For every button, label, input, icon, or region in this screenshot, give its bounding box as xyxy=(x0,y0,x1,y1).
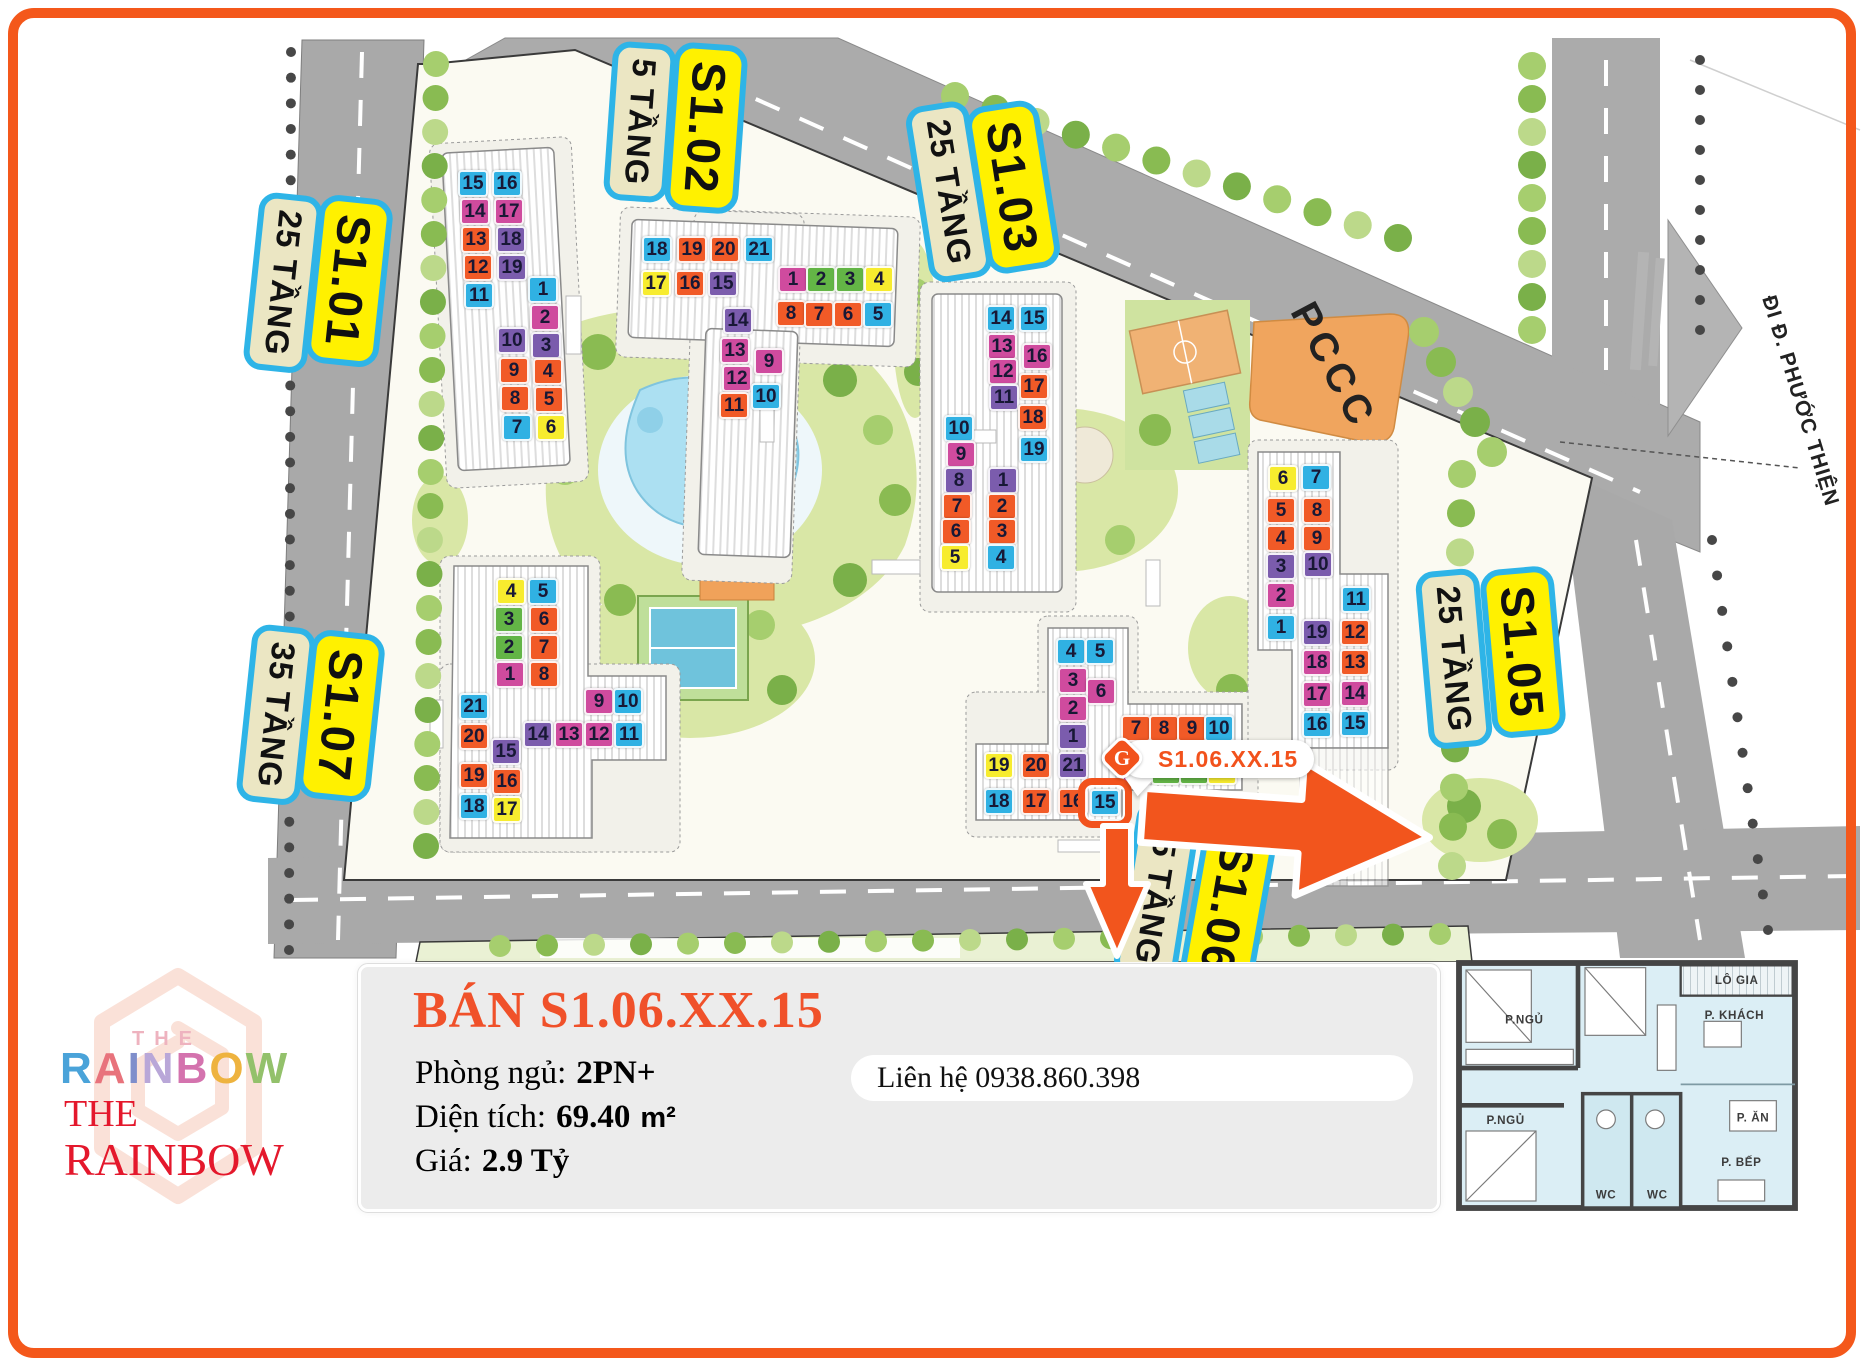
area-value: 69.40 xyxy=(556,1099,630,1135)
unit-cell-S1.06-3[interactable]: 3 xyxy=(1058,667,1088,694)
unit-cell-S1.03-9[interactable]: 9 xyxy=(946,441,976,468)
unit-cell-S1.07-11[interactable]: 11 xyxy=(614,721,644,748)
site-map: PCCC xyxy=(0,0,1864,962)
unit-cell-S1.01-16[interactable]: 16 xyxy=(492,170,522,197)
unit-cell-S1.01-15[interactable]: 15 xyxy=(458,170,488,197)
price-row: Giá:2.9 Tỷ xyxy=(415,1143,569,1180)
unit-cell-S1.02-12[interactable]: 12 xyxy=(722,365,752,392)
unit-cell-S1.02-18[interactable]: 18 xyxy=(642,236,672,263)
unit-cell-S1.07-21[interactable]: 21 xyxy=(459,693,489,720)
unit-cell-S1.03-11[interactable]: 11 xyxy=(989,384,1019,411)
unit-cell-S1.02-13[interactable]: 13 xyxy=(720,337,750,364)
logo-letter: O xyxy=(209,1044,245,1093)
logo-letter: B xyxy=(176,1044,210,1093)
unit-cell-S1.07-9[interactable]: 9 xyxy=(584,688,614,715)
unit-cell-S1.03-3[interactable]: 3 xyxy=(987,518,1017,545)
unit-cell-S1.05-3[interactable]: 3 xyxy=(1266,553,1296,580)
unit-cell-S1.05-6[interactable]: 6 xyxy=(1268,465,1298,492)
unit-cell-S1.02-5[interactable]: 5 xyxy=(863,301,893,328)
unit-cell-S1.01-10[interactable]: 10 xyxy=(497,327,527,354)
unit-cell-S1.03-13[interactable]: 13 xyxy=(987,333,1017,360)
unit-cell-S1.01-3[interactable]: 3 xyxy=(531,332,561,359)
unit-cell-S1.01-8[interactable]: 8 xyxy=(500,385,530,412)
unit-cell-S1.03-4[interactable]: 4 xyxy=(986,544,1016,571)
unit-cell-S1.06-8[interactable]: 8 xyxy=(1149,715,1179,742)
floorplan-thumbnail: P.NGỦ LÔ GIA P. KHÁCH P.NGỦ P. ĂN P. BẾP… xyxy=(1452,956,1802,1215)
unit-cell-S1.02-4[interactable]: 4 xyxy=(864,266,894,293)
unit-cell-S1.06-17[interactable]: 17 xyxy=(1021,788,1051,815)
room-label: P. KHÁCH xyxy=(1705,1009,1765,1022)
unit-cell-S1.01-5[interactable]: 5 xyxy=(534,386,564,413)
room-label: LÔ GIA xyxy=(1715,974,1759,987)
tower-label-s105-name[interactable]: S1.05 xyxy=(1479,565,1567,740)
unit-cell-S1.07-7[interactable]: 7 xyxy=(529,634,559,661)
unit-cell-S1.01-12[interactable]: 12 xyxy=(463,254,493,281)
unit-cell-S1.07-19[interactable]: 19 xyxy=(459,762,489,789)
unit-cell-S1.01-7[interactable]: 7 xyxy=(502,414,532,441)
unit-cell-S1.01-18[interactable]: 18 xyxy=(496,226,526,253)
unit-cell-S1.06-6[interactable]: 6 xyxy=(1086,678,1116,705)
logo-rainbow: RAINBOW xyxy=(64,1135,284,1185)
room-label: WC xyxy=(1596,1189,1617,1202)
unit-cell-S1.02-10[interactable]: 10 xyxy=(751,383,781,410)
unit-cell-S1.02-16[interactable]: 16 xyxy=(675,270,705,297)
unit-cell-S1.05-13[interactable]: 13 xyxy=(1340,649,1370,676)
unit-cell-S1.02-11[interactable]: 11 xyxy=(719,392,749,419)
room-label: P.NGỦ xyxy=(1486,1114,1524,1127)
unit-cell-S1.05-4[interactable]: 4 xyxy=(1266,525,1296,552)
room-label: P.NGỦ xyxy=(1505,1014,1543,1027)
contact-field[interactable]: Liên hệ 0938.860.398 xyxy=(851,1055,1413,1101)
unit-cell-S1.05-2[interactable]: 2 xyxy=(1266,582,1296,609)
logo-letter: R xyxy=(60,1044,94,1093)
unit-cell-S1.01-4[interactable]: 4 xyxy=(533,358,563,385)
unit-cell-S1.05-8[interactable]: 8 xyxy=(1302,497,1332,524)
unit-cell-S1.05-16[interactable]: 16 xyxy=(1302,711,1332,738)
room-label: P. BẾP xyxy=(1721,1156,1761,1169)
unit-cell-S1.06-10[interactable]: 10 xyxy=(1204,715,1234,742)
unit-cell-S1.06-18[interactable]: 18 xyxy=(984,788,1014,815)
unit-cell-S1.07-18[interactable]: 18 xyxy=(459,793,489,820)
unit-cell-S1.03-1[interactable]: 1 xyxy=(988,467,1018,494)
unit-cell-S1.01-11[interactable]: 11 xyxy=(464,282,494,309)
unit-cell-S1.07-2[interactable]: 2 xyxy=(494,634,524,661)
unit-cell-S1.07-16[interactable]: 16 xyxy=(492,768,522,795)
unit-cell-S1.02-7[interactable]: 7 xyxy=(804,301,834,328)
unit-cell-S1.02-14[interactable]: 14 xyxy=(723,307,753,334)
unit-cell-S1.02-2[interactable]: 2 xyxy=(806,266,836,293)
unit-cell-S1.02-15[interactable]: 15 xyxy=(708,270,738,297)
bedrooms-label: Phòng ngủ: xyxy=(415,1055,566,1091)
unit-cell-S1.03-16[interactable]: 16 xyxy=(1022,343,1052,370)
unit-cell-S1.05-12[interactable]: 12 xyxy=(1340,619,1370,646)
bedrooms-value: 2PN+ xyxy=(576,1055,655,1091)
unit-cell-S1.01-9[interactable]: 9 xyxy=(499,357,529,384)
unit-cell-S1.05-7[interactable]: 7 xyxy=(1301,464,1331,491)
logo-the: THE xyxy=(64,1094,284,1135)
rainbow-diamond-logo-icon: G xyxy=(1098,734,1146,782)
unit-cell-S1.07-1[interactable]: 1 xyxy=(495,661,525,688)
area-row: Diện tích:69.40m² xyxy=(415,1099,676,1136)
unit-cell-S1.01-6[interactable]: 6 xyxy=(536,414,566,441)
unit-cell-S1.05-19[interactable]: 19 xyxy=(1302,619,1332,646)
unit-cell-S1.02-21[interactable]: 21 xyxy=(744,236,774,263)
unit-cell-S1.06-21[interactable]: 21 xyxy=(1058,752,1088,779)
unit-cell-S1.07-8[interactable]: 8 xyxy=(529,661,559,688)
listing-panel: BÁN S1.06.XX.15 Phòng ngủ:2PN+ Diện tích… xyxy=(358,964,1440,1212)
unit-cell-S1.06-1[interactable]: 1 xyxy=(1058,723,1088,750)
unit-cell-S1.06-4[interactable]: 4 xyxy=(1056,638,1086,665)
unit-cell-S1.07-15[interactable]: 15 xyxy=(491,738,521,765)
unit-cell-S1.05-1[interactable]: 1 xyxy=(1266,614,1296,641)
unit-cell-S1.02-20[interactable]: 20 xyxy=(710,236,740,263)
unit-cell-S1.07-3[interactable]: 3 xyxy=(494,606,524,633)
logo-letter: N xyxy=(142,1044,176,1093)
logo-letter: A xyxy=(94,1044,128,1093)
unit-cell-S1.02-6[interactable]: 6 xyxy=(833,301,863,328)
unit-cell-S1.05-15[interactable]: 15 xyxy=(1340,710,1370,737)
unit-cell-S1.07-17[interactable]: 17 xyxy=(492,796,522,823)
unit-cell-S1.03-7[interactable]: 7 xyxy=(942,493,972,520)
unit-cell-S1.06-20[interactable]: 20 xyxy=(1021,752,1051,779)
unit-cell-S1.05-5[interactable]: 5 xyxy=(1266,497,1296,524)
unit-cell-S1.05-9[interactable]: 9 xyxy=(1302,525,1332,552)
unit-cell-S1.05-11[interactable]: 11 xyxy=(1341,586,1371,613)
unit-cell-S1.01-2[interactable]: 2 xyxy=(530,304,560,331)
unit-cell-S1.03-15[interactable]: 15 xyxy=(1019,305,1049,332)
logo-wordmark: THE RAINBOW xyxy=(64,1094,284,1185)
unit-cell-S1.05-18[interactable]: 18 xyxy=(1302,649,1332,676)
logo-rainbow-wordmark: RAINBOW xyxy=(60,1044,289,1094)
unit-cell-S1.07-20[interactable]: 20 xyxy=(459,723,489,750)
unit-cell-S1.03-10[interactable]: 10 xyxy=(944,415,974,442)
logo-letter: I xyxy=(128,1044,142,1093)
unit-cell-S1.02-1[interactable]: 1 xyxy=(778,266,808,293)
page: PCCC xyxy=(0,0,1864,1366)
unit-cell-S1.07-12[interactable]: 12 xyxy=(584,721,614,748)
price-label: Giá: xyxy=(415,1143,472,1179)
area-label: Diện tích: xyxy=(415,1099,546,1135)
unit-cell-S1.06-19[interactable]: 19 xyxy=(984,752,1014,779)
unit-cell-S1.05-17[interactable]: 17 xyxy=(1302,681,1332,708)
unit-cell-S1.07-13[interactable]: 13 xyxy=(554,721,584,748)
unit-cell-S1.07-6[interactable]: 6 xyxy=(529,606,559,633)
unit-cell-S1.07-14[interactable]: 14 xyxy=(523,721,553,748)
tower-label-s102-name[interactable]: S1.02 xyxy=(663,41,749,215)
unit-cell-S1.06-2[interactable]: 2 xyxy=(1058,695,1088,722)
unit-cell-S1.03-17[interactable]: 17 xyxy=(1019,373,1049,400)
listing-title: BÁN S1.06.XX.15 xyxy=(413,981,824,1040)
unit-cell-S1.02-8[interactable]: 8 xyxy=(776,300,806,327)
unit-cell-S1.03-2[interactable]: 2 xyxy=(987,493,1017,520)
unit-cell-S1.07-5[interactable]: 5 xyxy=(528,578,558,605)
room-label: P. ĂN xyxy=(1737,1112,1770,1125)
unit-cell-S1.03-18[interactable]: 18 xyxy=(1018,404,1048,431)
unit-cell-S1.05-14[interactable]: 14 xyxy=(1340,680,1370,707)
unit-cell-S1.01-13[interactable]: 13 xyxy=(461,226,491,253)
unit-cell-S1.01-1[interactable]: 1 xyxy=(528,276,558,303)
unit-cell-S1.01-17[interactable]: 17 xyxy=(494,198,524,225)
unit-cell-S1.01-14[interactable]: 14 xyxy=(460,198,490,225)
unit-cell-S1.03-12[interactable]: 12 xyxy=(988,358,1018,385)
unit-cell-S1.07-4[interactable]: 4 xyxy=(496,578,526,605)
unit-cell-S1.03-6[interactable]: 6 xyxy=(941,518,971,545)
area-unit: m² xyxy=(640,1102,675,1134)
room-label: WC xyxy=(1647,1189,1668,1202)
selected-unit-ring xyxy=(1078,778,1132,828)
unit-cell-S1.02-3[interactable]: 3 xyxy=(835,266,865,293)
unit-cell-S1.07-10[interactable]: 10 xyxy=(613,688,643,715)
unit-cell-S1.02-17[interactable]: 17 xyxy=(641,270,671,297)
unit-cell-S1.06-9[interactable]: 9 xyxy=(1177,715,1207,742)
selected-unit-callout[interactable]: S1.06.XX.15 xyxy=(1122,740,1314,778)
unit-cell-S1.02-9[interactable]: 9 xyxy=(754,348,784,375)
logo-letter: W xyxy=(246,1044,290,1093)
price-value: 2.9 Tỷ xyxy=(482,1143,569,1179)
unit-cell-S1.03-5[interactable]: 5 xyxy=(940,544,970,571)
unit-cell-S1.01-19[interactable]: 19 xyxy=(497,254,527,281)
unit-cell-S1.06-5[interactable]: 5 xyxy=(1085,638,1115,665)
unit-cell-S1.03-14[interactable]: 14 xyxy=(986,305,1016,332)
unit-cell-S1.05-10[interactable]: 10 xyxy=(1303,551,1333,578)
bedrooms-row: Phòng ngủ:2PN+ xyxy=(415,1055,656,1092)
unit-cell-S1.03-8[interactable]: 8 xyxy=(944,467,974,494)
unit-cell-S1.02-19[interactable]: 19 xyxy=(677,236,707,263)
unit-cell-S1.03-19[interactable]: 19 xyxy=(1019,436,1049,463)
